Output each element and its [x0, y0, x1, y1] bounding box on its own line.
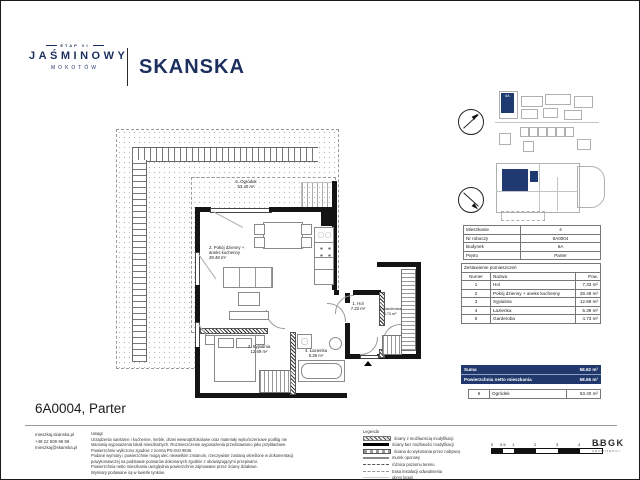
- wall-segment: [353, 290, 381, 295]
- wardrobe-shelves-right: [401, 269, 416, 351]
- entrance-marker: [364, 361, 372, 366]
- table-header-row: Numer Nazwa Pow.: [462, 272, 601, 281]
- scale-segment: [536, 449, 558, 453]
- legend-title: Legenda: [363, 429, 460, 434]
- architect-logo: BBGK ARCHITEKCI: [592, 438, 625, 453]
- legend-label: ściana do wykonania przez nabywcę: [394, 449, 460, 454]
- neighbor-fence: [301, 182, 333, 209]
- legend-label: trasa instalacji odwodnienia: [392, 469, 442, 474]
- legend-label: murek oporowy: [392, 455, 420, 460]
- info-value: 6A0004: [521, 234, 601, 243]
- apartment-info-table: Mieszkanie4 Nr roboczy6A0004 Budynek6A P…: [463, 225, 601, 260]
- wall-segment: [332, 181, 337, 207]
- legend-label: obrys loggii: [392, 475, 413, 480]
- contact-email: mieszkaj@skanska.pl: [35, 445, 77, 452]
- garden-num: 6: [469, 390, 490, 399]
- garden-retaining-wall: [132, 160, 147, 362]
- summary-table: Suma 58.62 m² Powierzchnia netto mieszka…: [461, 365, 601, 384]
- entrance-door-line: [360, 355, 379, 359]
- bedroom-label: 3. Sypialnia 12.69 m²: [237, 344, 281, 354]
- table-row: 3Sypialnia12.69 m²: [462, 298, 601, 307]
- summary-label: Powierzchnia netto mieszkania: [464, 377, 532, 382]
- scale-segment: [492, 449, 503, 453]
- road-line: [495, 122, 599, 123]
- building-outline: [564, 110, 582, 120]
- terrain-level-swatch: [363, 464, 389, 465]
- room-name: Łazienka: [491, 306, 576, 315]
- buyer-wall-swatch: [363, 449, 391, 454]
- plan-line: [557, 177, 558, 211]
- legend-row: różnica poziomu terenu: [363, 462, 460, 467]
- legend-label: ściany bez możliwości modyfikacji: [392, 442, 454, 447]
- plan-line: [496, 191, 578, 192]
- scale-segment: [558, 449, 580, 453]
- legend-row: murek oporowy: [363, 455, 460, 460]
- coffee-table: [238, 292, 260, 306]
- building-outline: [556, 127, 565, 137]
- kitchen-fridge: [314, 269, 334, 285]
- tv-cabinet: [229, 311, 269, 320]
- pillow: [218, 338, 234, 348]
- footer-divider: [25, 425, 617, 426]
- loggia-outline-swatch: [363, 477, 389, 478]
- table-row: Zestawienie pomieszczeń: [462, 264, 601, 273]
- legend-label: różnica poziomu terenu: [392, 462, 435, 467]
- info-value: 4: [521, 226, 601, 235]
- summary-row: Suma 58.62 m²: [461, 365, 601, 375]
- contact-phone: +48 22 509 99 99: [35, 439, 77, 446]
- hall-area-value: 7.33 m²: [343, 306, 373, 311]
- table-row: 6 Ogródek 53.40 m²: [469, 390, 601, 399]
- window-terrace-door: [210, 208, 272, 213]
- contact-website: mieszkaj.skanska.pl: [35, 432, 77, 439]
- building-outline: [521, 109, 538, 119]
- legend-row: trasa instalacji odwodnienia: [363, 469, 460, 474]
- kitchen-shaft: [321, 212, 332, 226]
- building-outline: [529, 127, 538, 137]
- room-name: Garderoba: [491, 315, 576, 324]
- chair: [301, 224, 312, 235]
- contact-block: mieszkaj.skanska.pl +48 22 509 99 99 mie…: [35, 432, 77, 452]
- legend-block: Legenda ściany z możliwością modyfikacji…: [363, 429, 460, 480]
- table-row: 4Łazienka5.39 m²: [462, 306, 601, 315]
- building-outline: [577, 139, 591, 150]
- room-area: 12.69 m²: [576, 298, 601, 307]
- garden-fence-top: [132, 147, 318, 162]
- wall-segment: [377, 262, 421, 267]
- room-name: Hol: [491, 281, 576, 290]
- legend-row: ściany bez możliwości modyfikacji: [363, 442, 460, 447]
- wall-segment: [334, 290, 339, 295]
- col-header-name: Nazwa: [491, 272, 576, 281]
- floor-plan: 6. Ogródek 53.40 m² 2. Pokój dzienny + a…: [1, 1, 456, 411]
- bedroom-area-value: 12.69 m²: [237, 349, 281, 354]
- bathroom-label: 4. Łazienka 5.39 m²: [296, 348, 336, 358]
- chair: [301, 237, 312, 248]
- nightstand: [205, 335, 215, 345]
- building-outline: [499, 133, 511, 145]
- building-outline: [565, 127, 574, 137]
- room-area: 5.39 m²: [576, 306, 601, 315]
- info-value: 6A: [521, 243, 601, 252]
- info-value: Parter: [521, 251, 601, 260]
- wardrobe-shelves-bottom: [382, 335, 402, 355]
- highlighted-apartment: [502, 169, 528, 191]
- wardrobe-room-label: 5. Garderoba 4.73 m²: [377, 307, 403, 317]
- page-title: 6A0004, Parter: [35, 401, 126, 416]
- rooms-table: Zestawienie pomieszczeń Numer Nazwa Pow.…: [461, 263, 601, 324]
- garden-name-cell: Ogródek: [490, 390, 567, 399]
- garden-label: 6. Ogródek 53.40 m²: [201, 179, 291, 189]
- col-header-num: Numer: [462, 272, 491, 281]
- garden-row-table: 6 Ogródek 53.40 m²: [468, 389, 601, 399]
- installation-route-swatch: [363, 471, 389, 472]
- sofa: [223, 267, 273, 288]
- info-label: Budynek: [464, 243, 521, 252]
- scale-tick-label: 4: [578, 442, 580, 447]
- architect-subtitle: ARCHITEKCI: [592, 449, 625, 453]
- summary-row: Powierzchnia netto mieszkania 58.55 m²: [461, 375, 601, 384]
- info-label: Piętro: [464, 251, 521, 260]
- wall-segment: [416, 262, 421, 359]
- building-outline: [574, 96, 593, 108]
- wall-segment: [195, 393, 347, 398]
- scale-segment: [514, 449, 536, 453]
- building-outline: [499, 91, 518, 119]
- plan-sheet-page: ETAP VI JAŚMINOWY MOKOTÓW SKANSKA: [0, 0, 640, 480]
- partition-living-bedroom: [200, 328, 268, 334]
- summary-value: 58.62 m²: [580, 367, 598, 372]
- plan-line: [539, 163, 540, 211]
- room-num: 4: [462, 306, 491, 315]
- table-row: 2Pokój dzienny + aneks kuchenny28.48 m²: [462, 289, 601, 298]
- scale-tick-label: 1: [512, 442, 514, 447]
- wall-segment: [195, 347, 200, 398]
- room-name: Pokój dzienny + aneks kuchenny: [491, 289, 576, 298]
- info-label: Nr roboczy: [464, 234, 521, 243]
- room-num: 1: [462, 281, 491, 290]
- legend-row: ściany z możliwością modyfikacji: [363, 436, 460, 441]
- building-outline: [523, 141, 534, 152]
- table-row: PiętroParter: [464, 251, 601, 260]
- summary-value: 58.55 m²: [580, 377, 598, 382]
- scale-tick-label: 0: [491, 442, 493, 447]
- plan-dashed-garden: [501, 211, 545, 221]
- room-name: Sypialnia: [491, 298, 576, 307]
- building-wing: [577, 166, 605, 208]
- scale-bar: 0 0.5 1 2 3 4 5m: [491, 448, 603, 454]
- room-num: 2: [462, 289, 491, 298]
- bathroom-area-value: 5.39 m²: [296, 353, 336, 358]
- info-label: Mieszkanie: [464, 226, 521, 235]
- north-arrow-icon: [458, 187, 484, 213]
- building-outline: [521, 96, 543, 107]
- garden-area-value: 53.40 m²: [201, 184, 291, 189]
- table-row: Budynek6A: [464, 243, 601, 252]
- hall-label: 1. Hol 7.33 m²: [343, 301, 373, 311]
- notes-block: Uwagi: Urządzenia sanitarne i kuchenne, …: [91, 431, 359, 475]
- hatched-wall-swatch: [363, 436, 391, 441]
- site-plan-map: 6A: [493, 89, 605, 155]
- building-outline: [547, 127, 556, 137]
- chair: [254, 224, 265, 235]
- architect-name: BBGK: [592, 438, 625, 448]
- solid-wall-swatch: [363, 443, 389, 446]
- north-arrow-icon: [458, 109, 484, 135]
- wall-segment: [195, 207, 200, 253]
- scale-segment: [503, 449, 514, 453]
- building-outline: [520, 127, 529, 137]
- wall-segment: [345, 323, 350, 357]
- scale-tick-label: 0.5: [500, 442, 506, 447]
- legend-row: obrys loggii: [363, 475, 460, 480]
- room-area: 7.33 m²: [576, 281, 601, 290]
- notes-line: Wymiary podawane są w świetle tynków.: [91, 470, 359, 476]
- living-area-value: 28.48 m²: [209, 255, 271, 260]
- wall-segment: [195, 285, 200, 323]
- table-row: Nr roboczy6A0004: [464, 234, 601, 243]
- washing-machine: [297, 334, 312, 349]
- col-header-area: Pow.: [576, 272, 601, 281]
- building-outline: [543, 108, 558, 118]
- bathtub-inner: [301, 363, 342, 379]
- living-room-label: 2. Pokój dzienny + aneks kuchenny 28.48 …: [209, 245, 271, 261]
- scale-tick-label: 3: [556, 442, 558, 447]
- legend-row: ściana do wykonania przez nabywcę: [363, 449, 460, 454]
- table-row: Mieszkanie4: [464, 226, 601, 235]
- room-area: 4.73 m²: [576, 315, 601, 324]
- wardrobe-area-value: 4.73 m²: [377, 312, 403, 317]
- building-outline: [545, 94, 571, 105]
- summary-label: Suma: [464, 367, 477, 372]
- building-key-plan: [491, 157, 609, 221]
- room-num: 3: [462, 298, 491, 307]
- bedroom-wardrobe: [259, 370, 291, 393]
- room-area: 28.48 m²: [576, 289, 601, 298]
- table-row: 5Garderoba4.73 m²: [462, 315, 601, 324]
- garden-area-cell: 53.40 m²: [567, 390, 601, 399]
- retaining-wall-swatch: [363, 457, 389, 459]
- highlighted-apartment-part: [530, 171, 538, 182]
- legend-label: ściany z możliwością modyfikacji: [394, 436, 453, 441]
- scale-tick-label: 2: [534, 442, 536, 447]
- building-outline: [538, 127, 547, 137]
- table-row: 1Hol7.33 m²: [462, 281, 601, 290]
- room-num: 5: [462, 315, 491, 324]
- rooms-table-title: Zestawienie pomieszczeń: [462, 264, 601, 273]
